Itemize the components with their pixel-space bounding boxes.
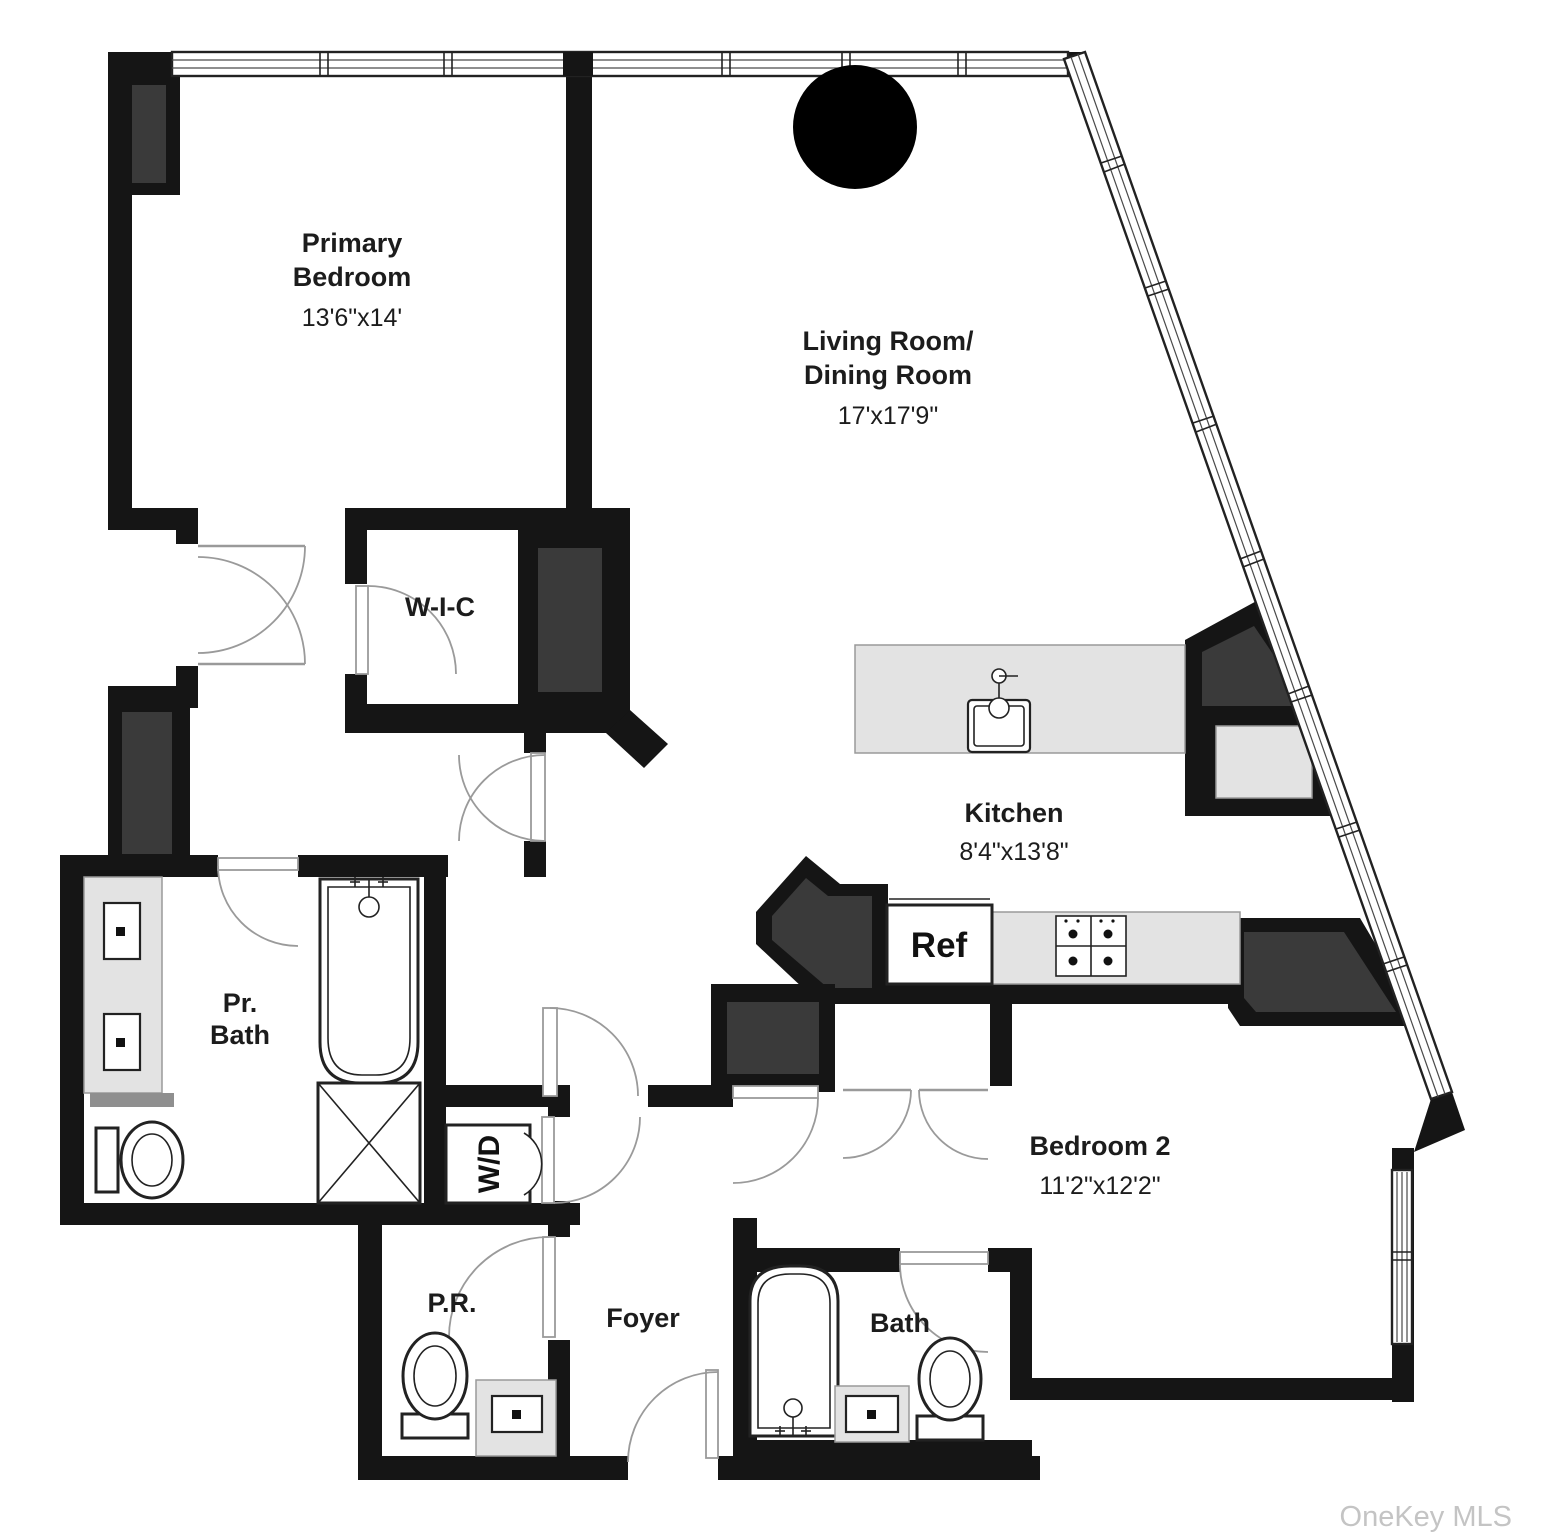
kitchen-label: Kitchen [964,798,1063,828]
living-dining-label-2: Dining Room [804,360,972,390]
watermark: OneKey MLS [1340,1501,1512,1533]
top-window-band [172,52,1068,76]
bath2-vanity [835,1386,909,1442]
bath2-tub [750,1266,838,1436]
refrigerator-label: Ref [911,926,968,965]
bedroom2-label: Bedroom 2 [1029,1131,1170,1161]
powder-room-vanity [476,1380,556,1456]
wic-label: W-I-C [405,592,475,622]
washer-dryer-label: W/D [473,1135,506,1193]
stove-icon [1056,916,1126,976]
primary-bath-toilet [96,1122,183,1198]
bath2-toilet [917,1338,983,1440]
primary-bath-vanity [84,877,174,1107]
primary-bath-tub [320,877,418,1083]
kitchen-counter [992,912,1240,984]
powder-room-toilet [402,1333,468,1438]
bedroom2-dim: 11'2"x12'2" [1039,1172,1160,1200]
bath2-label: Bath [870,1308,930,1338]
living-dining-label-1: Living Room/ [803,326,974,356]
primary-bath-label-1: Pr. [223,988,258,1018]
primary-bedroom-label-1: Primary [302,228,403,258]
floor-plan-canvas: Ref W/D [0,0,1541,1536]
primary-bath-label-2: Bath [210,1020,270,1050]
primary-bath-shower [318,1083,420,1203]
washer-dryer: W/D [446,1125,542,1203]
foyer-label: Foyer [606,1303,680,1333]
primary-bedroom-label-2: Bedroom [293,262,412,292]
powder-room-label: P.R. [427,1288,476,1318]
kitchen-dim: 8'4"x13'8" [959,838,1068,866]
living-dining-dim: 17'x17'9" [838,402,938,430]
primary-bedroom-dim: 13'6"x14' [302,304,402,332]
circle-marker [793,65,917,189]
bedroom2-window [1392,1170,1412,1344]
refrigerator: Ref [887,899,992,984]
floor-plan: Ref W/D [0,0,1541,1536]
kitchen-island [855,645,1185,753]
